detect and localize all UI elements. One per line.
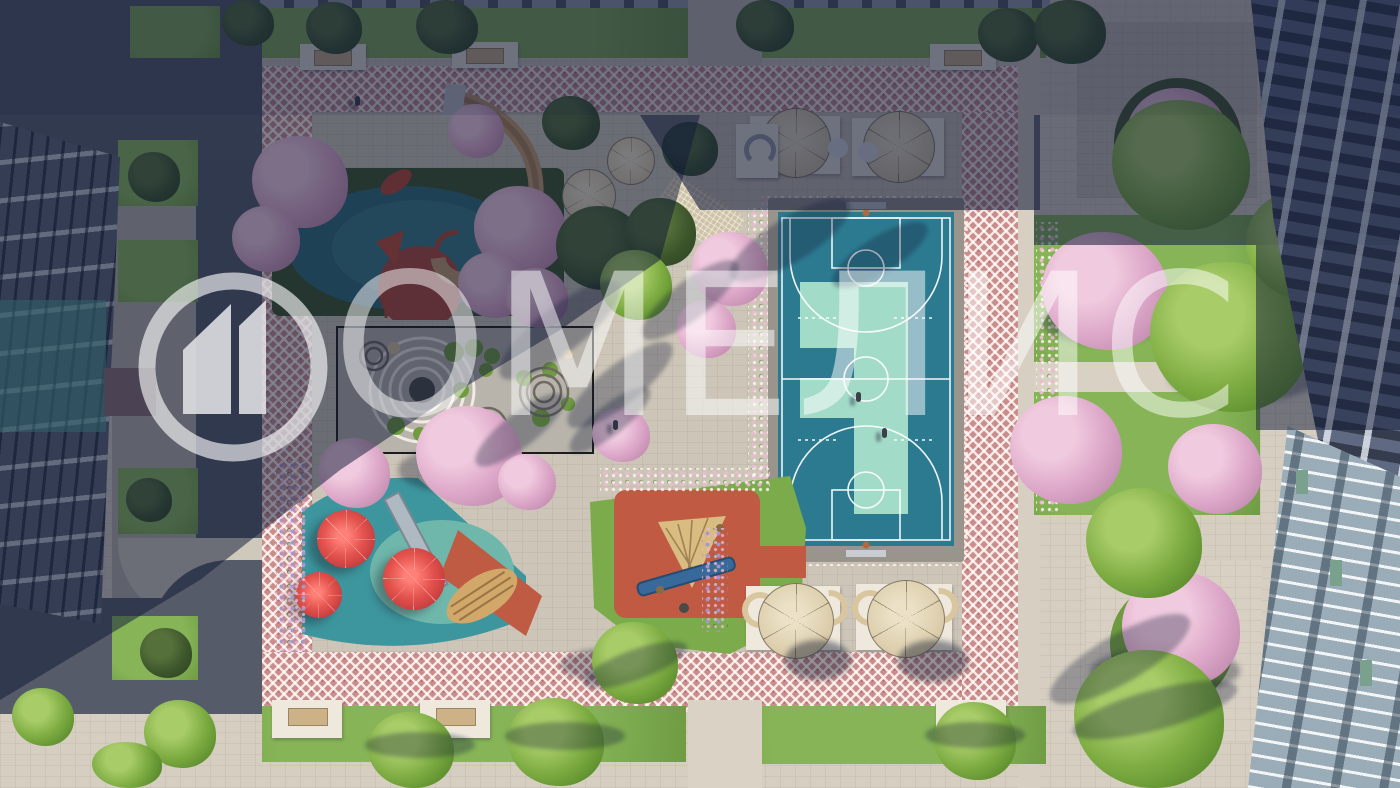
mosaic-walk-right	[962, 112, 1018, 712]
green-tree	[1034, 0, 1106, 64]
lilac-bed-right	[702, 528, 728, 632]
parasol-shadow	[898, 640, 968, 682]
logo-house-glyph	[183, 300, 266, 414]
bench	[288, 708, 328, 726]
green-tree	[736, 0, 794, 52]
pedestrian	[355, 96, 360, 106]
blossom-tree	[1168, 424, 1262, 514]
lilac-bed-left	[276, 460, 308, 652]
blossom-tree	[448, 104, 504, 158]
green-tree	[416, 0, 478, 54]
pedestrian	[882, 428, 887, 438]
playground3-flower-row	[600, 468, 770, 492]
playground3-terracotta-arm	[730, 546, 806, 578]
red-umbrella-3	[383, 548, 445, 610]
green-tree	[542, 96, 600, 150]
right-building-green-door	[1296, 470, 1308, 494]
lounge-chair	[858, 142, 878, 162]
red-umbrella-1	[317, 510, 375, 568]
right-building-green-door	[1330, 560, 1342, 586]
lounge-chair	[828, 138, 848, 158]
topleft-lawn	[130, 6, 220, 58]
developer-house-logo	[128, 262, 338, 472]
green-tree	[128, 152, 180, 202]
bench	[944, 50, 982, 66]
pedestrian	[856, 392, 861, 402]
plaza-parasol-small	[607, 137, 655, 185]
logo-circle	[147, 281, 319, 453]
aerial-render-canvas: ОМЕЛИС	[0, 0, 1400, 788]
parasol-shadow	[785, 640, 851, 680]
dappled-shadow	[505, 722, 625, 750]
zen-center-stone	[409, 377, 435, 403]
green-tree	[126, 478, 172, 522]
bench	[466, 48, 504, 64]
spiral-marking	[744, 134, 776, 166]
green-tree	[12, 688, 74, 746]
dappled-shadow	[925, 722, 1025, 748]
blossom-tree	[498, 454, 556, 510]
dappled-shadow	[365, 732, 475, 758]
green-tree	[662, 122, 718, 176]
green-tree	[222, 0, 274, 46]
green-tree	[140, 628, 192, 678]
green-tree	[306, 2, 362, 54]
left-building-teal-facade	[0, 300, 106, 432]
green-tree	[92, 742, 162, 788]
bottom-entry-path	[688, 700, 762, 788]
right-building-green-door	[1360, 660, 1372, 686]
green-tree	[978, 8, 1038, 62]
